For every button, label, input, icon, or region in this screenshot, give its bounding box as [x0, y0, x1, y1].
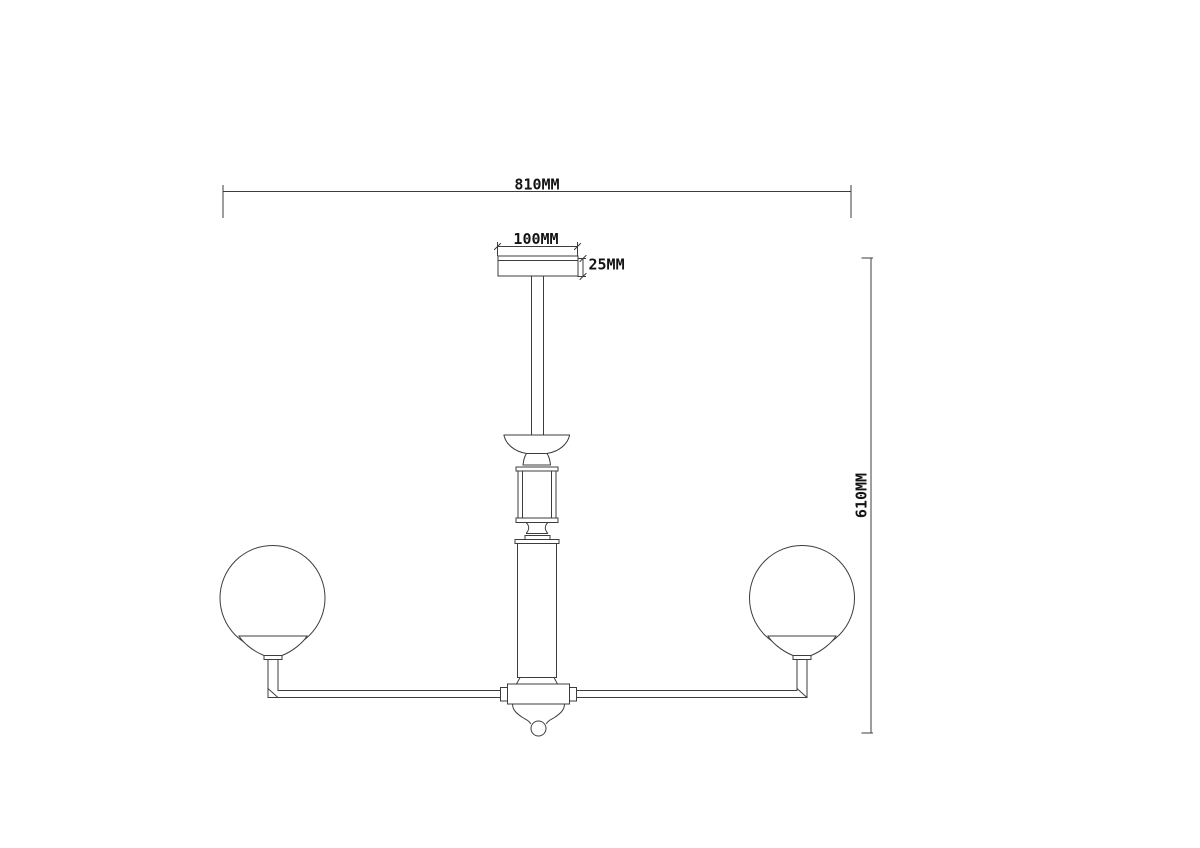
left-shade-holder	[239, 636, 307, 660]
hanging-rod	[532, 276, 544, 435]
canopy-height-label: 25MM	[589, 256, 625, 274]
finial-ball	[531, 721, 546, 736]
chandelier-dimension-drawing: 810MM 100MM 25MM 610MM	[0, 0, 1200, 848]
overall-height-label: 610MM	[853, 473, 871, 518]
overall-width-label: 810MM	[514, 176, 559, 194]
stem-drum	[516, 467, 558, 523]
dim-canopy-height	[578, 256, 586, 280]
left-arm	[268, 691, 501, 698]
right-elbow	[797, 660, 807, 698]
dimension-labels: 810MM 100MM 25MM 610MM	[513, 176, 870, 519]
stem-bell	[504, 435, 570, 465]
center-column	[515, 540, 559, 685]
right-arm	[577, 691, 808, 698]
column-sides	[517, 544, 558, 685]
column-top-cap	[515, 540, 559, 544]
bottom-finial	[513, 704, 565, 736]
drum-bottom-flange	[516, 518, 558, 523]
left-elbow	[268, 660, 278, 698]
right-shade-holder	[768, 636, 836, 660]
stem-spool-outline	[526, 523, 548, 534]
canopy-outline	[498, 256, 578, 276]
drum-body	[518, 471, 556, 518]
drum-top-flange	[516, 467, 558, 471]
hub-right-cap	[570, 688, 577, 702]
arm-hub	[501, 684, 577, 704]
left-globe-shade	[220, 546, 325, 651]
hub-left-cap	[501, 688, 508, 702]
right-globe-shade	[750, 546, 855, 651]
hub-body	[508, 684, 570, 704]
canopy-width-label: 100MM	[513, 230, 558, 248]
canopy-plate	[498, 256, 578, 276]
drawing-linework	[220, 186, 873, 737]
drum-rim-lines	[523, 471, 552, 518]
stem-spool-flange	[525, 536, 550, 540]
dim-canopy-height-lines	[578, 256, 586, 280]
stem-bell-outline	[504, 435, 570, 465]
drawing-sheet: 810MM 100MM 25MM 610MM	[0, 0, 1200, 848]
stem-spool	[525, 523, 550, 540]
